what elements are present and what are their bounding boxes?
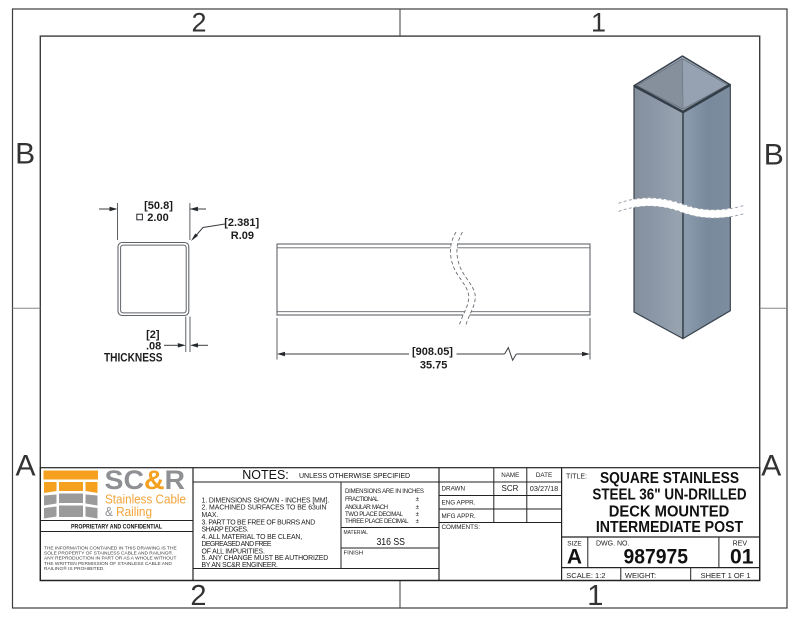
svg-text:A: A bbox=[761, 449, 781, 482]
svg-text:B: B bbox=[15, 137, 35, 170]
svg-text:WEIGHT:: WEIGHT: bbox=[625, 571, 656, 580]
svg-text:.08: .08 bbox=[146, 341, 161, 353]
svg-text:& Railing: & Railing bbox=[105, 504, 152, 519]
svg-text:1: 1 bbox=[587, 580, 603, 612]
svg-text:[2.381]: [2.381] bbox=[224, 217, 259, 229]
svg-text:BY AN SC&R ENGINEER.: BY AN SC&R ENGINEER. bbox=[202, 562, 278, 569]
svg-text:ANY REPRODUCTION IN PART OR AS: ANY REPRODUCTION IN PART OR AS A WHOLE W… bbox=[44, 556, 176, 562]
svg-text:SHARP EDGES.: SHARP EDGES. bbox=[202, 527, 249, 534]
svg-text:3. PART TO BE FREE OF BURRS AN: 3. PART TO BE FREE OF BURRS AND bbox=[202, 519, 316, 526]
svg-text:SC&R: SC&R bbox=[105, 465, 186, 495]
svg-text:NOTES:: NOTES: bbox=[242, 468, 289, 482]
svg-text:1. DIMENSIONS SHOWN - INCHES [: 1. DIMENSIONS SHOWN - INCHES [MM]. bbox=[202, 497, 330, 504]
svg-text:A: A bbox=[567, 546, 582, 569]
svg-text:SCALE: 1:2: SCALE: 1:2 bbox=[566, 571, 605, 580]
svg-text:FRACTIONAL: FRACTIONAL bbox=[345, 496, 379, 503]
svg-text:MAX.: MAX. bbox=[202, 512, 219, 519]
svg-text:A: A bbox=[15, 450, 35, 483]
svg-text:FINISH: FINISH bbox=[344, 551, 364, 557]
svg-text:2: 2 bbox=[190, 580, 206, 612]
svg-text:01: 01 bbox=[730, 546, 754, 569]
svg-text:R.09: R.09 bbox=[231, 230, 254, 242]
svg-text:[50.8]: [50.8] bbox=[144, 200, 173, 212]
svg-text:THE INFORMATION CONTAINED IN T: THE INFORMATION CONTAINED IN THIS DRAWIN… bbox=[44, 545, 177, 551]
svg-text:THE WRITTEN PERMISSION OF STAI: THE WRITTEN PERMISSION OF STAINLESS CABL… bbox=[44, 561, 172, 567]
svg-text:MATERIAL: MATERIAL bbox=[344, 530, 368, 536]
svg-text:1: 1 bbox=[591, 8, 606, 38]
svg-text:[908.05]: [908.05] bbox=[412, 346, 453, 358]
svg-text:THREE PLACE DECIMAL: THREE PLACE DECIMAL bbox=[345, 518, 409, 525]
svg-text:TITLE:: TITLE: bbox=[566, 474, 587, 481]
svg-text:SOLE PROPERTY OF STAINLESS CAB: SOLE PROPERTY OF STAINLESS CABLE AND RAI… bbox=[44, 550, 173, 557]
svg-text:987975: 987975 bbox=[624, 546, 689, 569]
svg-text:UNLESS OTHERWISE SPECIFIED: UNLESS OTHERWISE SPECIFIED bbox=[299, 473, 410, 480]
svg-text:DECK MOUNTED: DECK MOUNTED bbox=[609, 503, 730, 520]
svg-text:SHEET 1 OF 1: SHEET 1 OF 1 bbox=[701, 571, 751, 580]
svg-text:[2]: [2] bbox=[146, 329, 160, 341]
svg-text:DATE: DATE bbox=[536, 472, 552, 479]
svg-text:COMMENTS:: COMMENTS: bbox=[442, 524, 481, 531]
svg-text:4. ALL MATERIAL TO BE CLEAN,: 4. ALL MATERIAL TO BE CLEAN, bbox=[202, 534, 303, 541]
svg-text:PROPRIETARY AND CONFIDENTIAL: PROPRIETARY AND CONFIDENTIAL bbox=[71, 524, 162, 531]
svg-text:DRAWN: DRAWN bbox=[442, 486, 466, 493]
svg-text:5. ANY CHANGE MUST BE AUTHORIZ: 5. ANY CHANGE MUST BE AUTHORIZED bbox=[202, 555, 329, 562]
svg-text:SCR: SCR bbox=[502, 484, 519, 493]
svg-text:STEEL 36" UN-DRILLED: STEEL 36" UN-DRILLED bbox=[592, 487, 746, 504]
svg-text:INTERMEDIATE POST: INTERMEDIATE POST bbox=[596, 519, 743, 536]
svg-text:RAILING® IS PROHIBITED.: RAILING® IS PROHIBITED. bbox=[44, 565, 105, 572]
svg-text:SQUARE STAINLESS: SQUARE STAINLESS bbox=[600, 470, 739, 487]
svg-text:DEGREASED AND FREE: DEGREASED AND FREE bbox=[202, 541, 272, 548]
svg-text:ANGULAR: MACH: ANGULAR: MACH bbox=[345, 504, 388, 511]
svg-text:ENG APPR.: ENG APPR. bbox=[442, 500, 476, 507]
svg-text:THICKNESS: THICKNESS bbox=[104, 352, 163, 364]
svg-text:NAME: NAME bbox=[501, 472, 519, 479]
svg-text:DIMENSIONS ARE IN INCHES: DIMENSIONS ARE IN INCHES bbox=[345, 488, 424, 495]
svg-text:MFG APPR.: MFG APPR. bbox=[442, 513, 477, 520]
svg-text:35.75: 35.75 bbox=[420, 360, 448, 372]
svg-text:B: B bbox=[764, 139, 784, 172]
svg-text:TWO PLACE DECIMAL: TWO PLACE DECIMAL bbox=[345, 511, 404, 518]
svg-text:03/27/18: 03/27/18 bbox=[530, 484, 558, 493]
svg-text:2. MACHINED SURFACES TO BE 63u: 2. MACHINED SURFACES TO BE 63uIN bbox=[202, 505, 327, 512]
svg-text:2.00: 2.00 bbox=[147, 212, 168, 224]
svg-text:316 SS: 316 SS bbox=[376, 536, 405, 548]
svg-text:2: 2 bbox=[191, 8, 206, 38]
